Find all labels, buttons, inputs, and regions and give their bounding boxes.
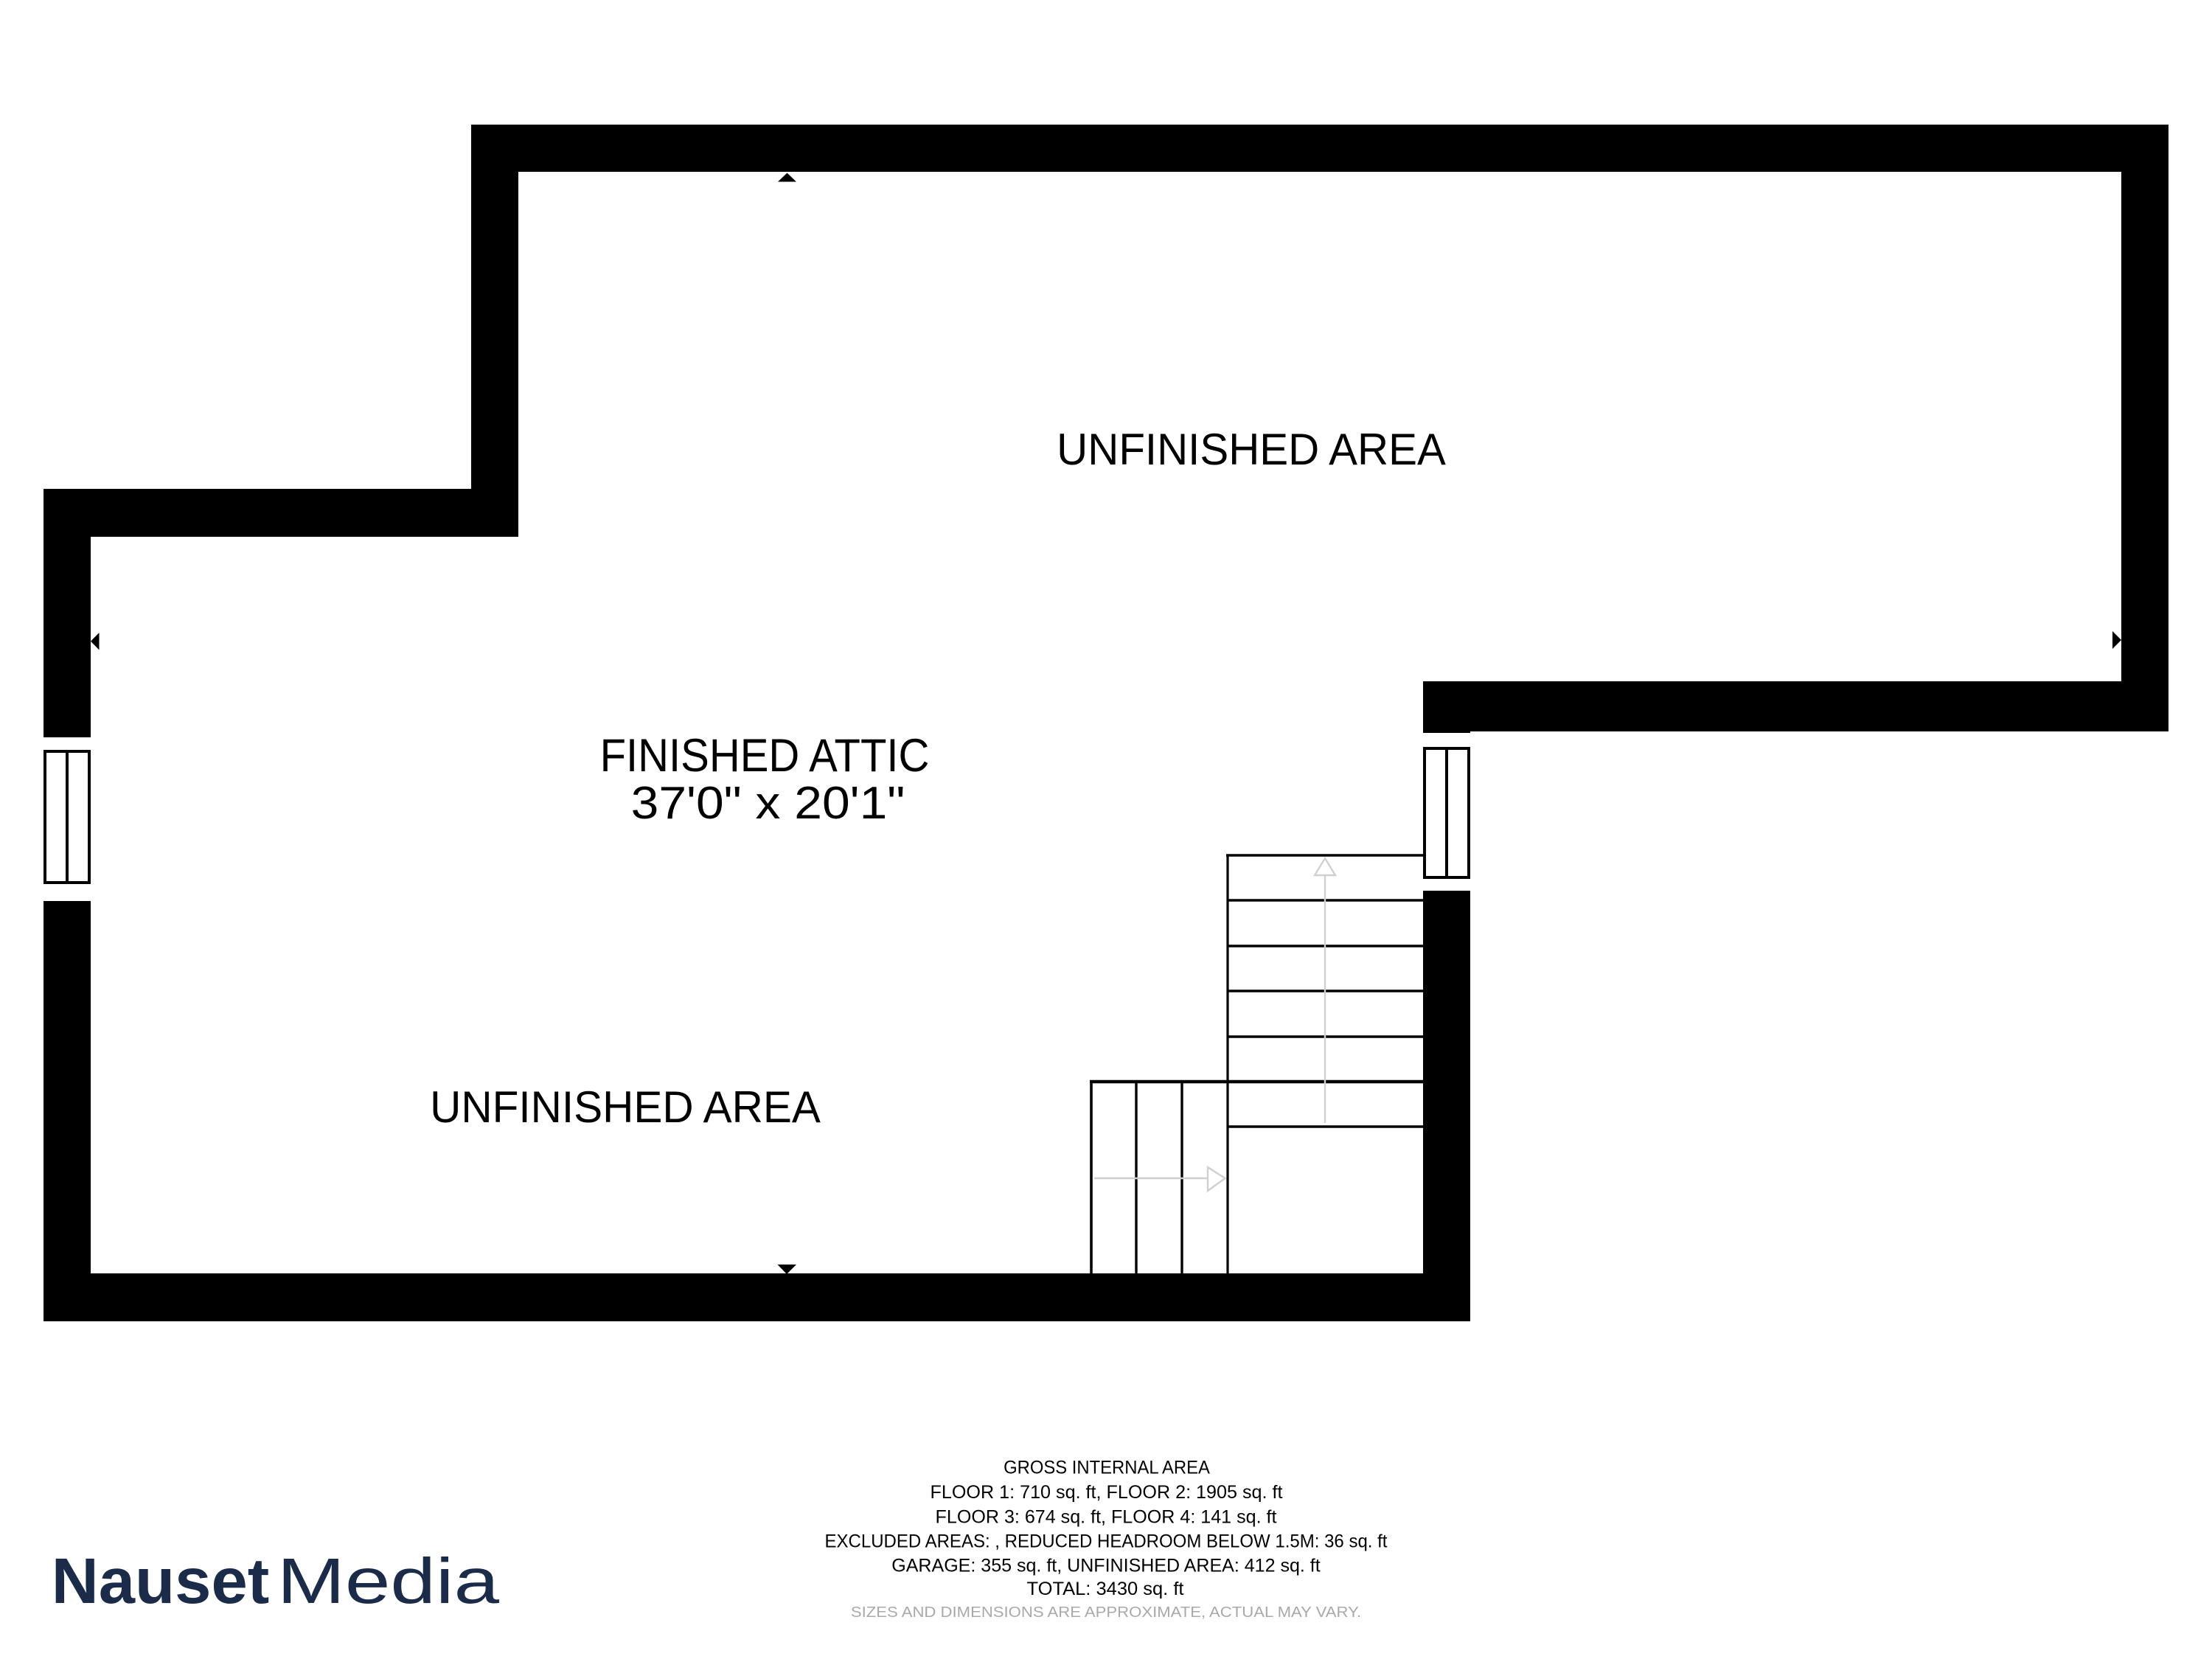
svg-text:37'0" x 20'1": 37'0" x 20'1" xyxy=(631,777,905,829)
svg-text:GROSS INTERNAL AREA: GROSS INTERNAL AREA xyxy=(1004,1458,1210,1478)
svg-text:SIZES AND DIMENSIONS ARE APPRO: SIZES AND DIMENSIONS ARE APPROXIMATE, AC… xyxy=(851,1604,1361,1621)
svg-text:UNFINISHED AREA: UNFINISHED AREA xyxy=(1057,424,1446,474)
svg-text:Media: Media xyxy=(277,1545,500,1617)
svg-text:Nauset: Nauset xyxy=(52,1545,269,1617)
svg-text:GARAGE: 355 sq. ft, UNFINISHED: GARAGE: 355 sq. ft, UNFINISHED AREA: 412… xyxy=(891,1555,1320,1576)
svg-text:EXCLUDED AREAS: , REDUCED HEAD: EXCLUDED AREAS: , REDUCED HEADROOM BELOW… xyxy=(825,1531,1388,1552)
svg-text:FLOOR 1: 710 sq. ft, FLOOR 2:: FLOOR 1: 710 sq. ft, FLOOR 2: 1905 sq. f… xyxy=(931,1482,1283,1503)
svg-text:FINISHED ATTIC: FINISHED ATTIC xyxy=(600,729,930,782)
svg-text:TOTAL: 3430 sq. ft: TOTAL: 3430 sq. ft xyxy=(1026,1579,1183,1599)
svg-text:FLOOR 3: 674 sq. ft, FLOOR 4:: FLOOR 3: 674 sq. ft, FLOOR 4: 141 sq. ft xyxy=(936,1506,1277,1527)
svg-text:UNFINISHED AREA: UNFINISHED AREA xyxy=(430,1082,821,1132)
